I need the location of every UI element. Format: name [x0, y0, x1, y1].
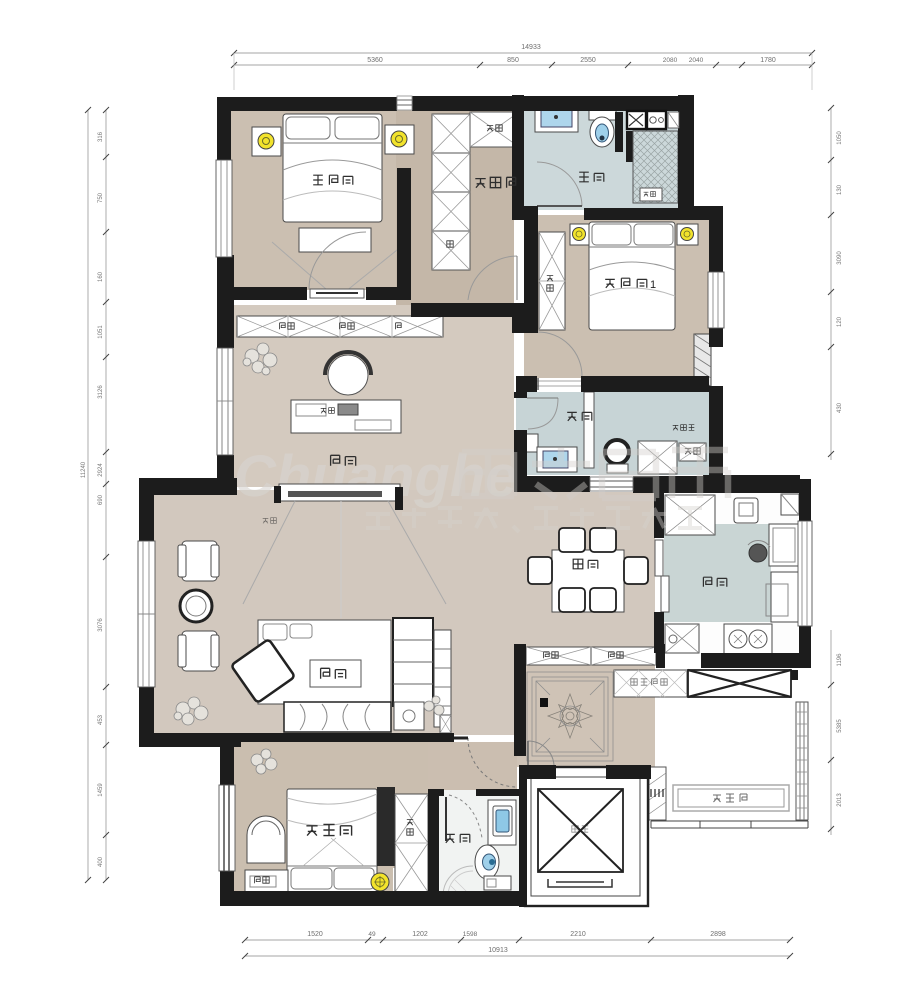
svg-text:750: 750 — [98, 192, 104, 203]
svg-text:1598: 1598 — [463, 931, 478, 938]
svg-text:5385: 5385 — [837, 719, 843, 733]
svg-text:1196: 1196 — [837, 653, 843, 667]
svg-text:130: 130 — [837, 184, 843, 195]
svg-text:14933: 14933 — [521, 44, 541, 51]
svg-text:2924: 2924 — [98, 463, 104, 477]
svg-text:11240: 11240 — [81, 461, 87, 478]
svg-text:316: 316 — [98, 131, 104, 142]
svg-text:3076: 3076 — [98, 618, 104, 632]
svg-text:2898: 2898 — [710, 931, 726, 938]
svg-text:2080: 2080 — [663, 57, 678, 64]
svg-text:1: 1 — [650, 279, 656, 291]
svg-text:2550: 2550 — [580, 57, 596, 64]
svg-text:690: 690 — [98, 494, 104, 505]
svg-text:1050: 1050 — [837, 131, 843, 145]
svg-text:1051: 1051 — [98, 325, 104, 339]
svg-text:1459: 1459 — [98, 783, 104, 797]
svg-text:453: 453 — [98, 714, 104, 725]
svg-text:850: 850 — [507, 57, 519, 64]
svg-text:2013: 2013 — [837, 793, 843, 807]
svg-text:2040: 2040 — [689, 57, 704, 64]
svg-text:5360: 5360 — [367, 57, 383, 64]
svg-text:10913: 10913 — [488, 947, 508, 954]
svg-text:1202: 1202 — [412, 931, 428, 938]
svg-text:1520: 1520 — [307, 931, 323, 938]
svg-text:430: 430 — [837, 402, 843, 413]
svg-text:49: 49 — [368, 931, 376, 938]
svg-text:3090: 3090 — [837, 251, 843, 265]
svg-text:160: 160 — [98, 271, 104, 282]
svg-text:2210: 2210 — [570, 931, 586, 938]
svg-text:120: 120 — [837, 316, 843, 327]
svg-text:3126: 3126 — [98, 385, 104, 399]
svg-text:400: 400 — [98, 856, 104, 867]
svg-text:1780: 1780 — [760, 57, 776, 64]
